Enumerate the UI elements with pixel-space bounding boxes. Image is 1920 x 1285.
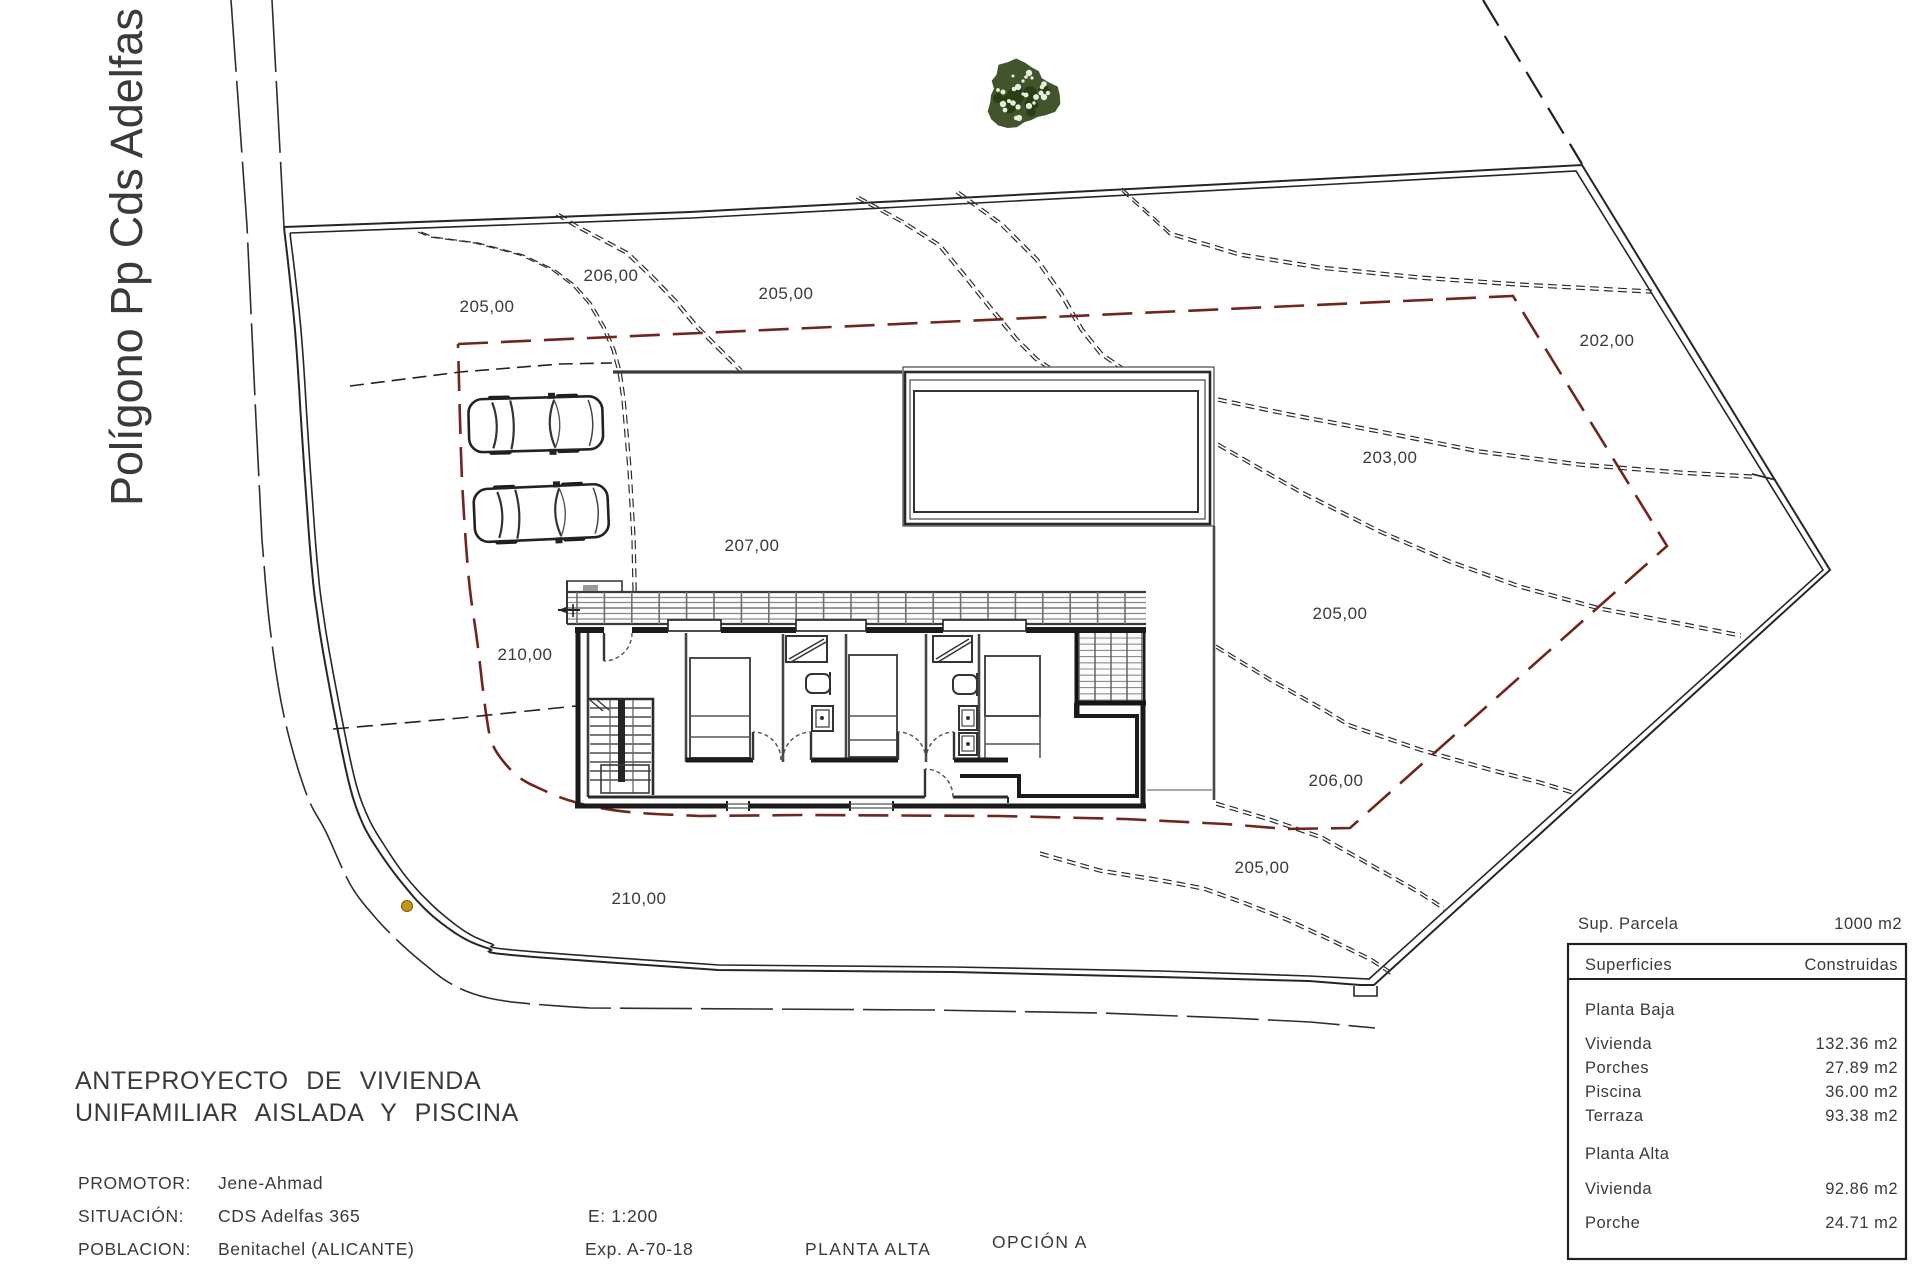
svg-text:OPCIÓN A: OPCIÓN A <box>992 1231 1088 1252</box>
svg-text:Porches: Porches <box>1585 1059 1649 1077</box>
svg-text:205,00: 205,00 <box>460 297 515 316</box>
svg-text:Terraza: Terraza <box>1585 1107 1644 1125</box>
svg-text:206,00: 206,00 <box>584 266 639 285</box>
svg-text:UNIFAMILIAR AISLADA Y PISCINA: UNIFAMILIAR AISLADA Y PISCINA <box>75 1099 519 1127</box>
svg-text:205,00: 205,00 <box>1313 604 1368 623</box>
svg-text:203,00: 203,00 <box>1363 448 1418 467</box>
svg-text:Vivienda: Vivienda <box>1585 1035 1652 1053</box>
svg-text:205,00: 205,00 <box>759 284 814 303</box>
svg-text:Porche: Porche <box>1585 1214 1640 1232</box>
svg-text:CDS Adelfas 365: CDS Adelfas 365 <box>218 1206 360 1226</box>
svg-text:POBLACION:: POBLACION: <box>78 1239 191 1259</box>
svg-text:Vivienda: Vivienda <box>1585 1180 1652 1198</box>
svg-text:Construidas: Construidas <box>1804 956 1898 974</box>
svg-text:92.86 m2: 92.86 m2 <box>1825 1180 1898 1198</box>
svg-text:210,00: 210,00 <box>498 645 553 664</box>
svg-text:ANTEPROYECTO DE VIVIENDA: ANTEPROYECTO DE VIVIENDA <box>75 1067 481 1095</box>
svg-text:SITUACIÓN:: SITUACIÓN: <box>78 1205 184 1226</box>
svg-text:Benitachel (ALICANTE): Benitachel (ALICANTE) <box>218 1239 414 1259</box>
svg-text:36.00 m2: 36.00 m2 <box>1825 1083 1898 1101</box>
svg-text:210,00: 210,00 <box>612 889 667 908</box>
svg-text:Piscina: Piscina <box>1585 1083 1642 1101</box>
svg-text:202,00: 202,00 <box>1580 331 1635 350</box>
svg-text:PROMOTOR:: PROMOTOR: <box>78 1173 191 1193</box>
svg-text:Exp. A-70-18: Exp. A-70-18 <box>585 1239 693 1259</box>
svg-text:E: 1:200: E: 1:200 <box>588 1206 658 1226</box>
svg-text:Jene-Ahmad: Jene-Ahmad <box>218 1173 323 1193</box>
svg-text:Planta Alta: Planta Alta <box>1585 1145 1670 1163</box>
svg-text:Polígono Pp Cds Adelfas: Polígono Pp Cds Adelfas <box>101 8 152 506</box>
svg-text:Superficies: Superficies <box>1585 956 1672 974</box>
svg-text:132.36 m2: 132.36 m2 <box>1816 1035 1898 1053</box>
svg-text:1000 m2: 1000 m2 <box>1834 915 1902 933</box>
svg-text:Sup. Parcela: Sup. Parcela <box>1578 915 1679 933</box>
svg-text:Planta Baja: Planta Baja <box>1585 1001 1675 1019</box>
svg-text:205,00: 205,00 <box>1235 858 1290 877</box>
svg-text:207,00: 207,00 <box>725 536 780 555</box>
svg-text:27.89 m2: 27.89 m2 <box>1825 1059 1898 1077</box>
svg-text:24.71 m2: 24.71 m2 <box>1825 1214 1898 1232</box>
svg-text:PLANTA ALTA: PLANTA ALTA <box>805 1239 931 1259</box>
svg-text:206,00: 206,00 <box>1309 771 1364 790</box>
svg-text:93.38 m2: 93.38 m2 <box>1825 1107 1898 1125</box>
